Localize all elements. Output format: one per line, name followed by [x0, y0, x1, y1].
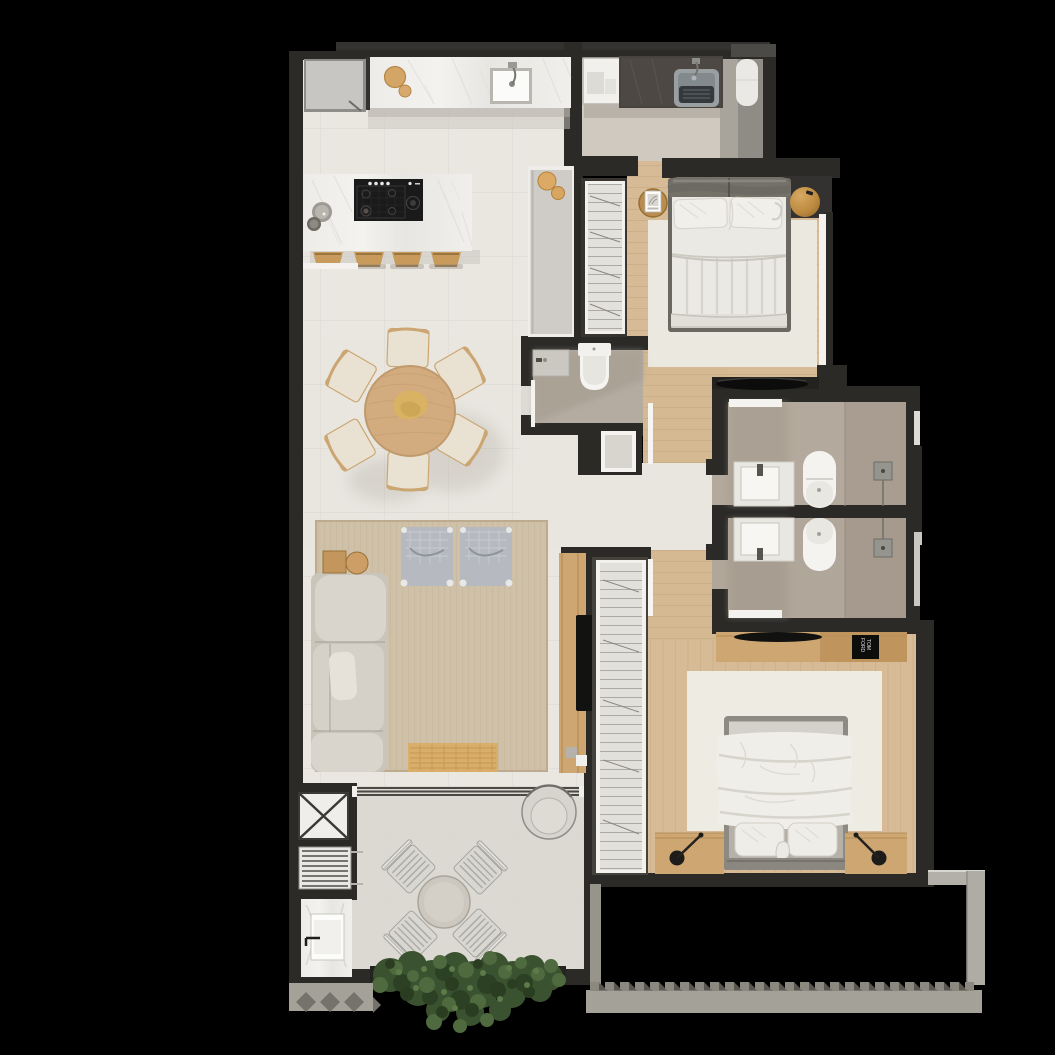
svg-text:FORD: FORD [859, 638, 865, 653]
